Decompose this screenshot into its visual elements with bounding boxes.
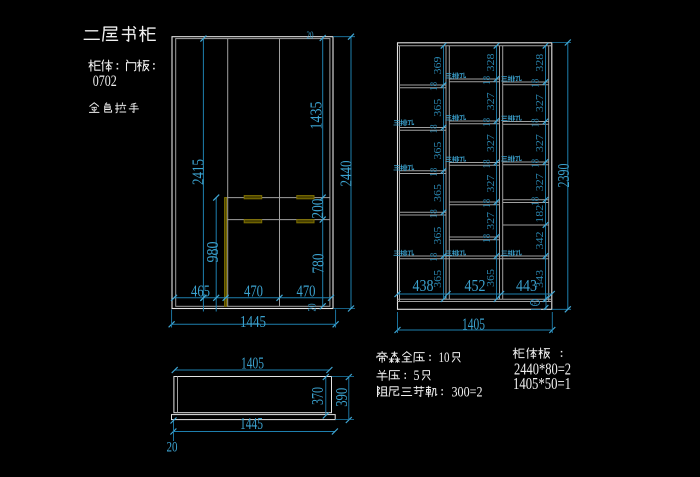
svg-text:780: 780: [308, 254, 327, 274]
svg-text:20: 20: [304, 304, 318, 312]
svg-text:10: 10: [439, 350, 450, 366]
svg-text:465: 465: [191, 281, 210, 300]
svg-text:980: 980: [203, 242, 222, 263]
svg-text:370: 370: [308, 387, 327, 405]
svg-text:18: 18: [531, 79, 542, 88]
svg-text:300=2: 300=2: [452, 385, 483, 401]
svg-text:50: 50: [532, 299, 539, 306]
svg-text:18: 18: [429, 124, 440, 133]
svg-text:365: 365: [433, 270, 444, 288]
svg-text:365: 365: [433, 227, 444, 245]
svg-text:342: 342: [535, 232, 546, 250]
svg-text:18: 18: [531, 159, 542, 168]
svg-text:2440: 2440: [337, 161, 356, 187]
svg-text:5: 5: [414, 368, 420, 384]
svg-text:438: 438: [413, 276, 434, 295]
svg-text:327: 327: [535, 173, 546, 191]
svg-text:0702: 0702: [93, 73, 117, 90]
svg-text:470: 470: [244, 281, 263, 300]
svg-text:1435: 1435: [306, 102, 325, 130]
svg-text:365: 365: [433, 99, 444, 117]
svg-text:327: 327: [486, 212, 497, 230]
svg-text:328: 328: [486, 54, 497, 72]
svg-text:470: 470: [297, 281, 316, 300]
svg-text:18: 18: [429, 168, 440, 177]
svg-text:365: 365: [486, 269, 497, 287]
svg-text:20: 20: [167, 440, 178, 456]
svg-text:443: 443: [516, 276, 537, 295]
svg-text:18: 18: [482, 159, 493, 168]
svg-text:327: 327: [486, 134, 497, 152]
svg-text:18: 18: [429, 209, 440, 218]
svg-text:182: 182: [535, 205, 546, 223]
svg-text:2415: 2415: [189, 159, 208, 185]
svg-text:18: 18: [482, 118, 493, 127]
svg-text:1405: 1405: [462, 315, 485, 334]
svg-text:2390: 2390: [554, 164, 573, 188]
svg-text:327: 327: [486, 175, 497, 193]
svg-text:20: 20: [307, 30, 314, 41]
svg-text:369: 369: [433, 57, 444, 75]
svg-text:200: 200: [308, 199, 327, 219]
svg-text:452: 452: [465, 276, 486, 295]
svg-text:18: 18: [482, 199, 493, 208]
svg-text:1405: 1405: [241, 353, 264, 372]
svg-text:18: 18: [531, 118, 542, 127]
svg-text:390: 390: [332, 388, 351, 407]
svg-text:1405*50=1: 1405*50=1: [513, 374, 571, 393]
svg-text:365: 365: [433, 142, 444, 160]
svg-text:327: 327: [486, 92, 497, 110]
svg-text:327: 327: [535, 134, 546, 152]
svg-text:1445: 1445: [240, 414, 263, 433]
svg-text:18: 18: [531, 197, 542, 206]
svg-text:18: 18: [482, 76, 493, 85]
svg-text:18: 18: [429, 82, 440, 91]
svg-text:327: 327: [535, 94, 546, 112]
svg-text:18: 18: [429, 253, 440, 262]
svg-text:365: 365: [433, 184, 444, 202]
svg-text:18: 18: [482, 234, 493, 243]
svg-text:328: 328: [535, 54, 546, 72]
svg-text:1445: 1445: [240, 312, 266, 331]
